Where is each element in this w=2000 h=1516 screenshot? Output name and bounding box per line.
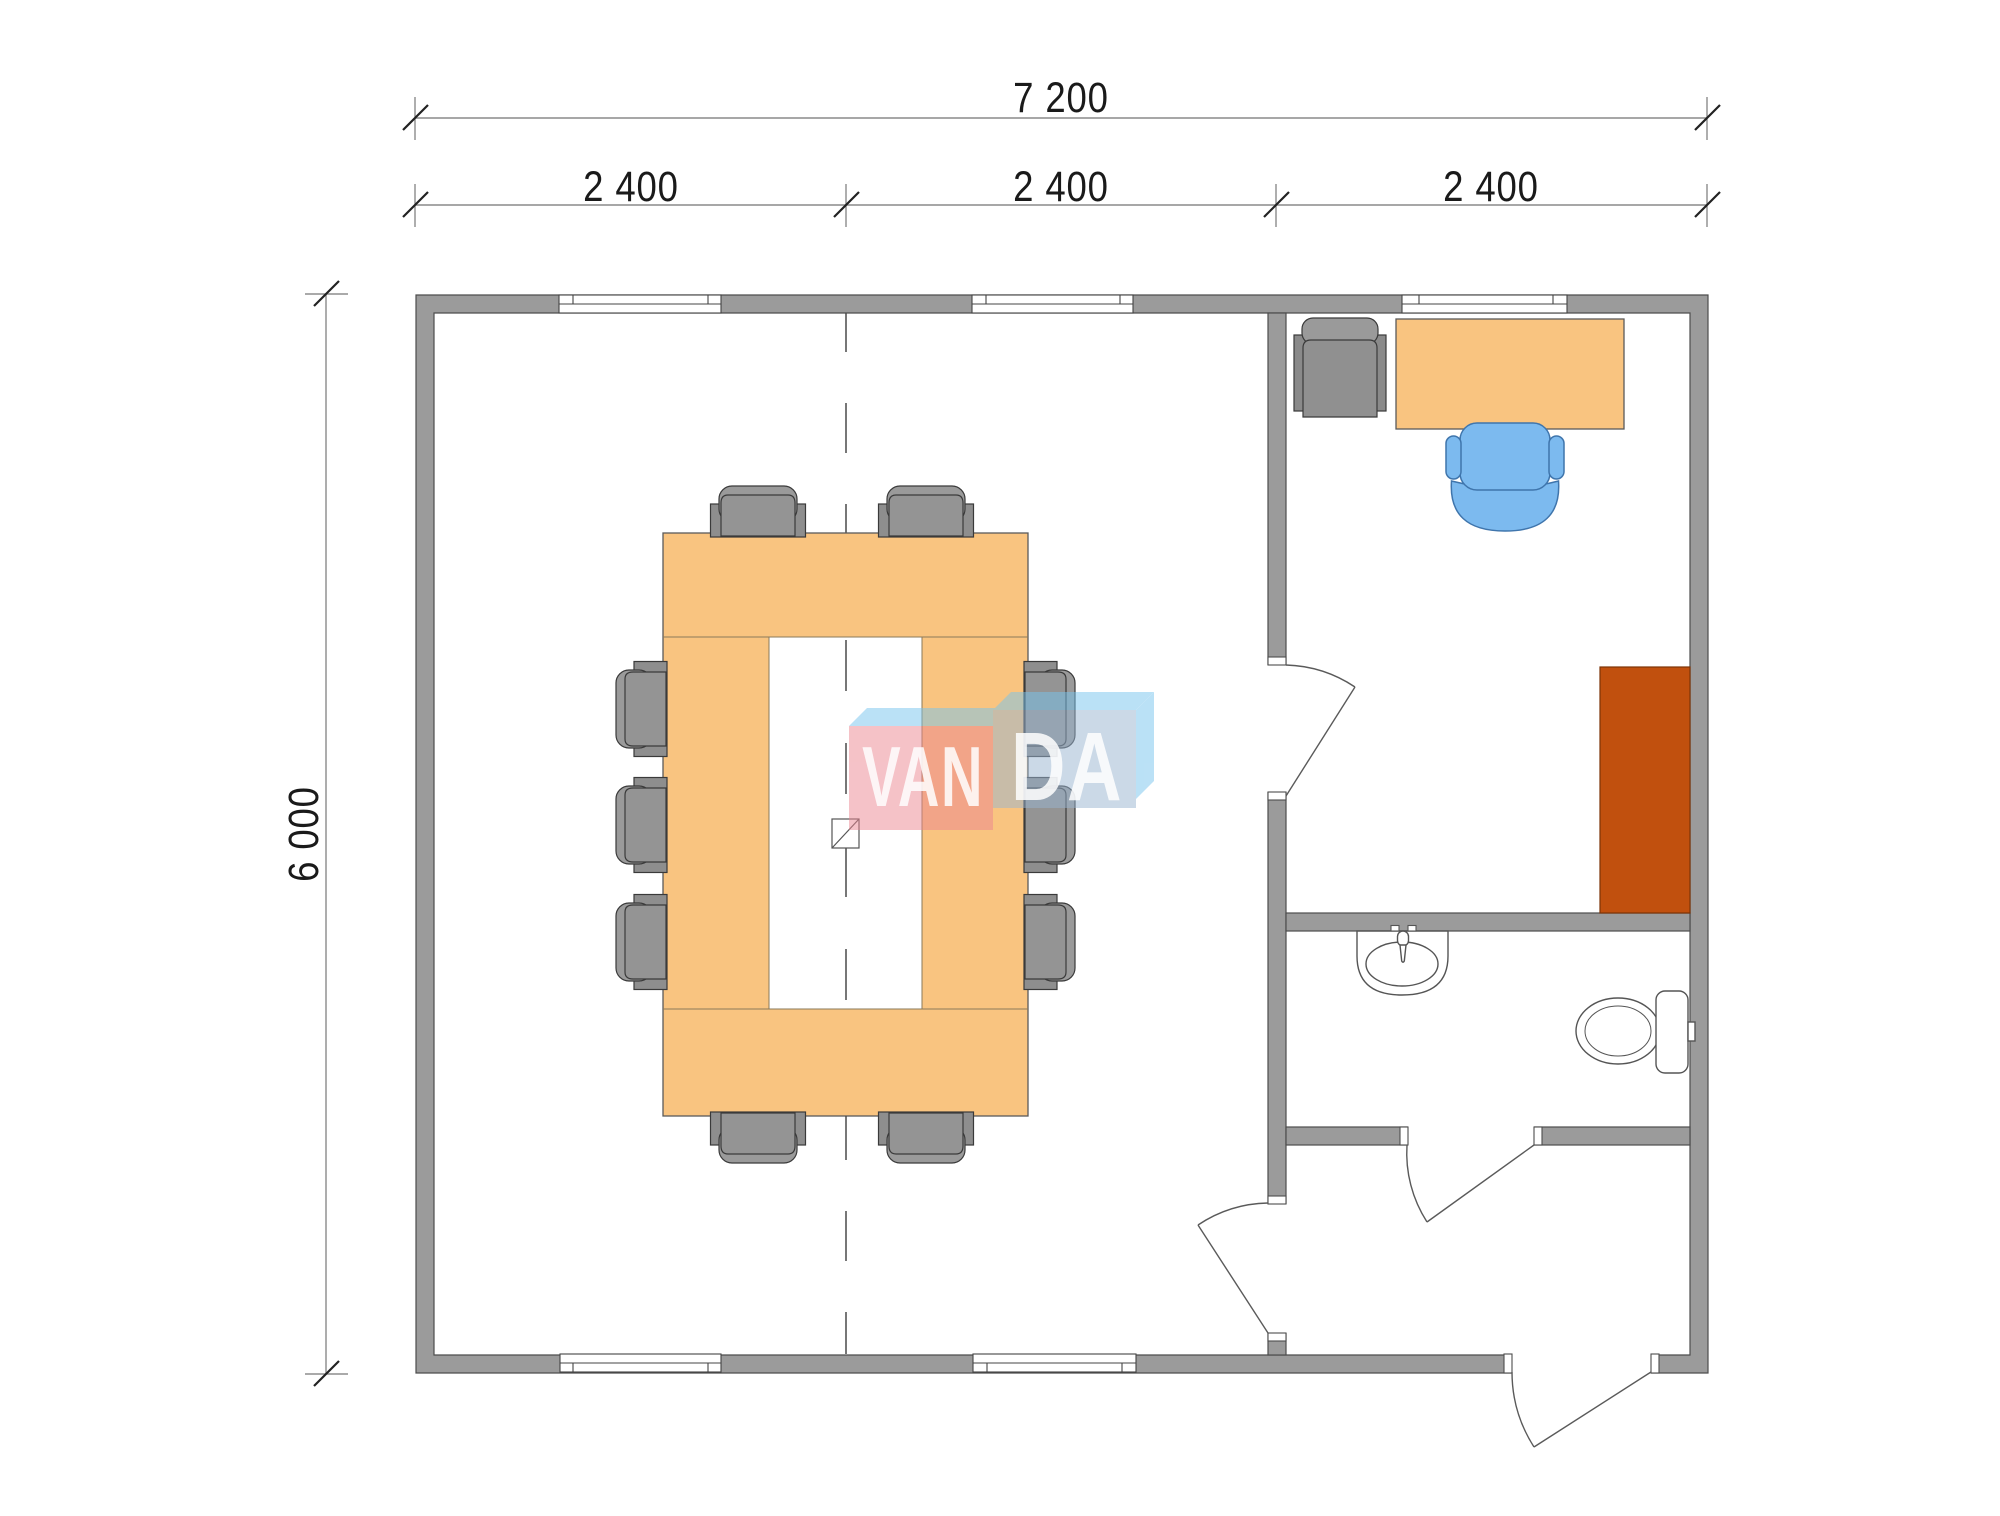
svg-text:7 200: 7 200: [1013, 74, 1109, 121]
svg-text:2 400: 2 400: [583, 163, 679, 210]
svg-text:VAN: VAN: [862, 730, 984, 825]
svg-text:2 400: 2 400: [1443, 163, 1539, 210]
svg-text:DA: DA: [1011, 713, 1123, 821]
svg-text:2 400: 2 400: [1013, 163, 1109, 210]
svg-text:6 000: 6 000: [280, 786, 327, 882]
